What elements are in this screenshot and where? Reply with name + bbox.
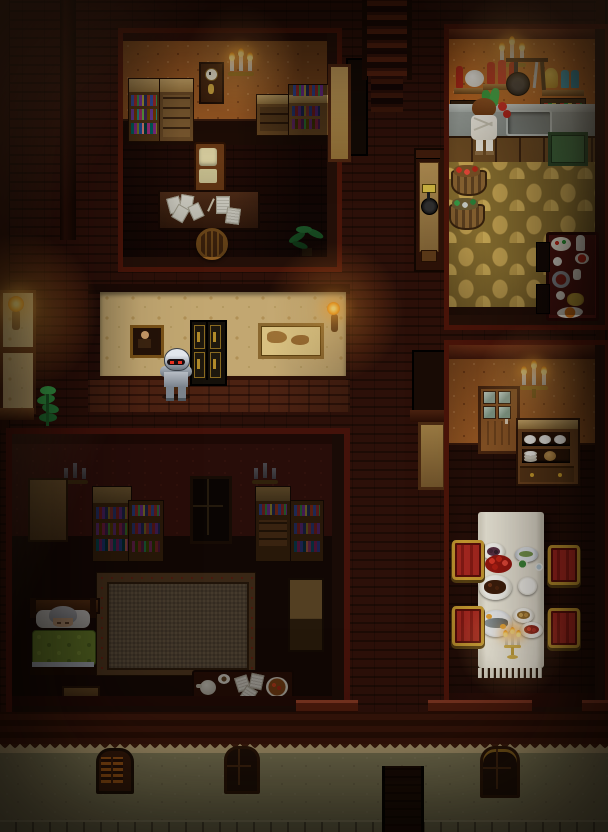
writing-desk[interactable] bbox=[158, 190, 260, 230]
map-blotch bbox=[291, 335, 309, 345]
stair-landing bbox=[371, 76, 403, 112]
sleeper-npc[interactable] bbox=[49, 606, 77, 632]
hanging-pan bbox=[421, 198, 438, 215]
shelf-top bbox=[129, 79, 159, 92]
flame bbox=[510, 627, 515, 634]
study-side-desk[interactable] bbox=[256, 94, 292, 136]
bed[interactable] bbox=[30, 598, 96, 676]
candle bbox=[532, 368, 536, 385]
entry-doorway[interactable] bbox=[382, 766, 424, 832]
cup bbox=[573, 269, 581, 280]
cook-npc[interactable] bbox=[468, 98, 500, 160]
wall-beam bbox=[60, 0, 76, 240]
wardrobe[interactable] bbox=[28, 478, 68, 542]
torch-flame bbox=[8, 296, 24, 312]
candle bbox=[254, 468, 258, 479]
footboard bbox=[30, 667, 96, 675]
book-row bbox=[96, 507, 128, 519]
book-row bbox=[131, 109, 157, 120]
candle bbox=[542, 374, 546, 385]
knight-leg bbox=[166, 387, 174, 401]
tongs bbox=[540, 62, 546, 90]
candle bbox=[73, 463, 77, 478]
book-row bbox=[294, 541, 320, 552]
bookshelf[interactable] bbox=[128, 500, 164, 562]
window-mullion bbox=[496, 749, 498, 789]
hutch-shelf bbox=[522, 449, 570, 463]
study-chair[interactable] bbox=[194, 142, 226, 194]
dark-chair[interactable] bbox=[536, 242, 550, 272]
shelf-top bbox=[93, 487, 131, 503]
knob bbox=[558, 473, 562, 477]
staircase[interactable] bbox=[362, 0, 412, 112]
jug bbox=[576, 235, 585, 251]
closed-eyes bbox=[57, 622, 61, 624]
gold-arch-window[interactable] bbox=[480, 746, 520, 798]
sconce-bracket bbox=[252, 480, 278, 484]
dish[interactable] bbox=[520, 622, 543, 638]
panel-drawer bbox=[421, 250, 437, 262]
plant-pot bbox=[302, 248, 312, 256]
hall-double-door[interactable] bbox=[190, 320, 227, 386]
palm-leaf bbox=[296, 226, 312, 233]
bedroom bbox=[6, 428, 350, 724]
palm-leaf bbox=[291, 240, 308, 251]
flame bbox=[247, 52, 253, 61]
dark-window[interactable] bbox=[224, 746, 260, 794]
bread-loaf bbox=[544, 451, 556, 461]
window-mullion bbox=[207, 479, 209, 535]
book-row bbox=[294, 523, 320, 534]
blue-bottle bbox=[571, 70, 579, 88]
flame bbox=[503, 630, 508, 637]
map-frame[interactable] bbox=[258, 323, 324, 359]
flame bbox=[516, 630, 521, 637]
flame bbox=[541, 366, 547, 375]
bedroom-bottom-beam bbox=[12, 696, 332, 706]
wall-clock[interactable] bbox=[199, 62, 224, 104]
candle bbox=[511, 634, 514, 645]
flame bbox=[521, 366, 527, 375]
study-top-beam bbox=[123, 33, 327, 41]
book-row bbox=[96, 523, 128, 535]
red-bottle bbox=[456, 66, 463, 88]
left-torch bbox=[5, 292, 27, 336]
apples bbox=[454, 165, 480, 177]
plate bbox=[554, 435, 566, 444]
wardrobe[interactable] bbox=[288, 578, 324, 652]
alcove-trim bbox=[0, 408, 34, 420]
chair-seat-cushion bbox=[199, 169, 217, 183]
knight-npc[interactable] bbox=[160, 348, 192, 402]
bowl-of-sauce bbox=[575, 253, 589, 264]
dining-chair[interactable] bbox=[548, 545, 580, 585]
dining-chair[interactable] bbox=[548, 608, 580, 648]
candle bbox=[248, 60, 252, 71]
flame bbox=[531, 360, 537, 369]
kitchen-shelf-right[interactable] bbox=[542, 64, 584, 98]
panel-cornice bbox=[416, 150, 440, 159]
plate bbox=[524, 435, 536, 444]
plate-stack bbox=[524, 451, 537, 456]
pillar-cap bbox=[410, 410, 446, 422]
book-row bbox=[96, 539, 128, 551]
candle bbox=[505, 637, 508, 645]
cheese-wheel bbox=[465, 70, 484, 87]
palm-plant bbox=[288, 226, 326, 257]
candelabra-base bbox=[507, 655, 518, 659]
door-ornament bbox=[197, 332, 200, 342]
apple-basket[interactable] bbox=[451, 162, 483, 195]
bedroom-window[interactable] bbox=[190, 476, 232, 544]
candle bbox=[82, 468, 86, 479]
roast bbox=[484, 580, 506, 594]
book-row bbox=[292, 106, 320, 116]
salad-bowl bbox=[551, 237, 571, 251]
book-row bbox=[132, 505, 160, 516]
study-room bbox=[118, 28, 342, 272]
quill-pen bbox=[207, 198, 215, 212]
candle bbox=[272, 468, 276, 479]
flame bbox=[509, 36, 515, 45]
door-pillar bbox=[328, 64, 351, 162]
dish[interactable] bbox=[535, 563, 543, 571]
cook-shoe bbox=[486, 151, 494, 155]
flame bbox=[238, 48, 244, 57]
fish-garnish bbox=[519, 551, 533, 557]
door-ornament bbox=[197, 359, 200, 369]
stone-ledge bbox=[0, 820, 608, 832]
teapot bbox=[200, 680, 216, 695]
window-mullion bbox=[227, 765, 251, 767]
red-bottle bbox=[498, 60, 506, 84]
book-row bbox=[132, 541, 160, 552]
green-blanket bbox=[32, 630, 96, 666]
cook-shoe bbox=[475, 151, 483, 155]
shelf-drawers bbox=[259, 520, 287, 546]
dining-chair[interactable] bbox=[452, 540, 484, 580]
game-scene bbox=[0, 0, 608, 832]
dish[interactable] bbox=[485, 555, 512, 573]
tablecloth-fringe bbox=[478, 668, 544, 678]
cabinet-drawers bbox=[163, 95, 190, 137]
lined-note bbox=[225, 207, 241, 225]
flame bbox=[229, 52, 235, 61]
clock-face bbox=[205, 68, 218, 81]
desk-top bbox=[257, 95, 291, 104]
torch-flame bbox=[327, 302, 340, 315]
door-lower bbox=[482, 421, 510, 445]
paper bbox=[187, 202, 204, 221]
glass-pane bbox=[498, 406, 511, 419]
teapot-spout bbox=[196, 684, 202, 688]
map-blotch bbox=[267, 331, 287, 343]
bedroom-rug bbox=[96, 572, 256, 676]
glass-pane bbox=[483, 391, 496, 404]
dining-candle-sconce bbox=[518, 362, 550, 402]
dining-room bbox=[444, 340, 608, 722]
roof-band bbox=[0, 712, 608, 744]
flame bbox=[499, 42, 505, 51]
cabinet-top bbox=[160, 79, 193, 92]
potatoes bbox=[517, 611, 530, 619]
hutch-top bbox=[518, 420, 578, 429]
hutch[interactable] bbox=[516, 418, 580, 486]
dish[interactable] bbox=[479, 575, 512, 600]
candle bbox=[522, 374, 526, 385]
glass-door[interactable] bbox=[478, 386, 520, 454]
dining-table[interactable] bbox=[478, 512, 544, 668]
right-torch bbox=[324, 300, 344, 336]
knight-eyes bbox=[170, 361, 174, 364]
food-bowl bbox=[266, 677, 288, 697]
book-row bbox=[292, 119, 320, 129]
book-row bbox=[132, 523, 160, 534]
candelabra-stem bbox=[511, 647, 514, 655]
bookshelf[interactable] bbox=[255, 486, 291, 562]
torch-bracket bbox=[331, 314, 338, 332]
portrait-painting[interactable] bbox=[130, 325, 164, 358]
green-cabinet[interactable] bbox=[548, 132, 588, 166]
chair-back-cushion bbox=[199, 148, 217, 166]
desk-shelves bbox=[260, 107, 288, 131]
teacup bbox=[218, 674, 230, 684]
book-row bbox=[131, 95, 157, 106]
candle bbox=[230, 60, 234, 71]
ladle bbox=[533, 62, 539, 88]
clock-hands bbox=[209, 72, 211, 75]
bookshelf[interactable] bbox=[92, 486, 132, 562]
round-chair[interactable] bbox=[196, 228, 228, 260]
dish[interactable] bbox=[513, 608, 534, 623]
candle bbox=[263, 463, 267, 478]
pan-panel[interactable] bbox=[414, 148, 446, 272]
glass-pane bbox=[483, 406, 496, 419]
book-row bbox=[131, 123, 157, 134]
portrait-body bbox=[138, 339, 151, 348]
sconce-stem bbox=[532, 389, 536, 398]
dining-top-beam bbox=[449, 345, 595, 359]
bookshelf[interactable] bbox=[290, 500, 324, 562]
window-mullion bbox=[483, 767, 511, 769]
knight-leg bbox=[178, 387, 186, 401]
vegetable-basket[interactable] bbox=[449, 195, 481, 229]
book-row bbox=[294, 505, 320, 516]
strawberry-pile bbox=[485, 555, 512, 573]
book-row bbox=[259, 504, 287, 515]
alcove-panel bbox=[0, 350, 36, 414]
shuttered-window[interactable] bbox=[96, 748, 134, 794]
hutch-shelf bbox=[522, 432, 570, 446]
window-mullion bbox=[193, 505, 223, 507]
study-book-desk[interactable] bbox=[288, 84, 329, 136]
hall-plant bbox=[36, 386, 60, 428]
shelf-board bbox=[542, 90, 584, 96]
door-divider bbox=[206, 322, 208, 380]
glass-pane bbox=[498, 391, 511, 404]
stair-steps bbox=[366, 0, 408, 76]
plate bbox=[539, 435, 551, 444]
red-bottle bbox=[487, 62, 495, 84]
knob bbox=[530, 473, 534, 477]
books-standing bbox=[293, 85, 323, 96]
candle bbox=[517, 637, 520, 645]
dish[interactable] bbox=[517, 560, 528, 568]
berry-dessert bbox=[524, 625, 539, 634]
study-candle-sconce bbox=[228, 50, 254, 78]
corner-pillar bbox=[412, 350, 448, 418]
dining-chair[interactable] bbox=[452, 606, 484, 646]
sconce-bracket bbox=[228, 72, 254, 76]
dish[interactable] bbox=[518, 577, 537, 595]
candle bbox=[239, 56, 243, 71]
door-handle bbox=[505, 419, 508, 424]
radish bbox=[503, 110, 511, 118]
desk-top bbox=[289, 95, 328, 103]
pillar-panel bbox=[418, 422, 446, 490]
door-ornament bbox=[213, 332, 216, 342]
hutch-base bbox=[520, 466, 574, 482]
cup bbox=[553, 257, 562, 266]
lemon-garnish bbox=[486, 614, 492, 619]
flame bbox=[519, 42, 525, 51]
blue-bottle bbox=[561, 70, 569, 88]
torch-bracket bbox=[12, 310, 20, 330]
rug-field bbox=[107, 582, 249, 670]
stair-rail bbox=[362, 0, 367, 80]
vegetables bbox=[452, 198, 478, 210]
shelf-top bbox=[256, 487, 290, 501]
portrait-face bbox=[141, 331, 149, 339]
study-drawer-cabinet[interactable] bbox=[159, 78, 194, 142]
clock-pendulum bbox=[208, 84, 214, 94]
study-bookshelf[interactable] bbox=[128, 78, 160, 142]
dish[interactable] bbox=[502, 630, 523, 660]
shutter bbox=[113, 757, 123, 783]
shutter bbox=[101, 757, 111, 783]
grilled-fish bbox=[484, 618, 508, 628]
exterior-wall bbox=[0, 712, 608, 832]
sleeper-face bbox=[53, 618, 73, 627]
bed-post bbox=[90, 598, 96, 618]
door-ornament bbox=[213, 359, 216, 369]
window-mullion bbox=[238, 749, 240, 785]
pan-handle bbox=[427, 192, 430, 200]
stem bbox=[46, 394, 49, 426]
stair-rail bbox=[407, 0, 412, 80]
